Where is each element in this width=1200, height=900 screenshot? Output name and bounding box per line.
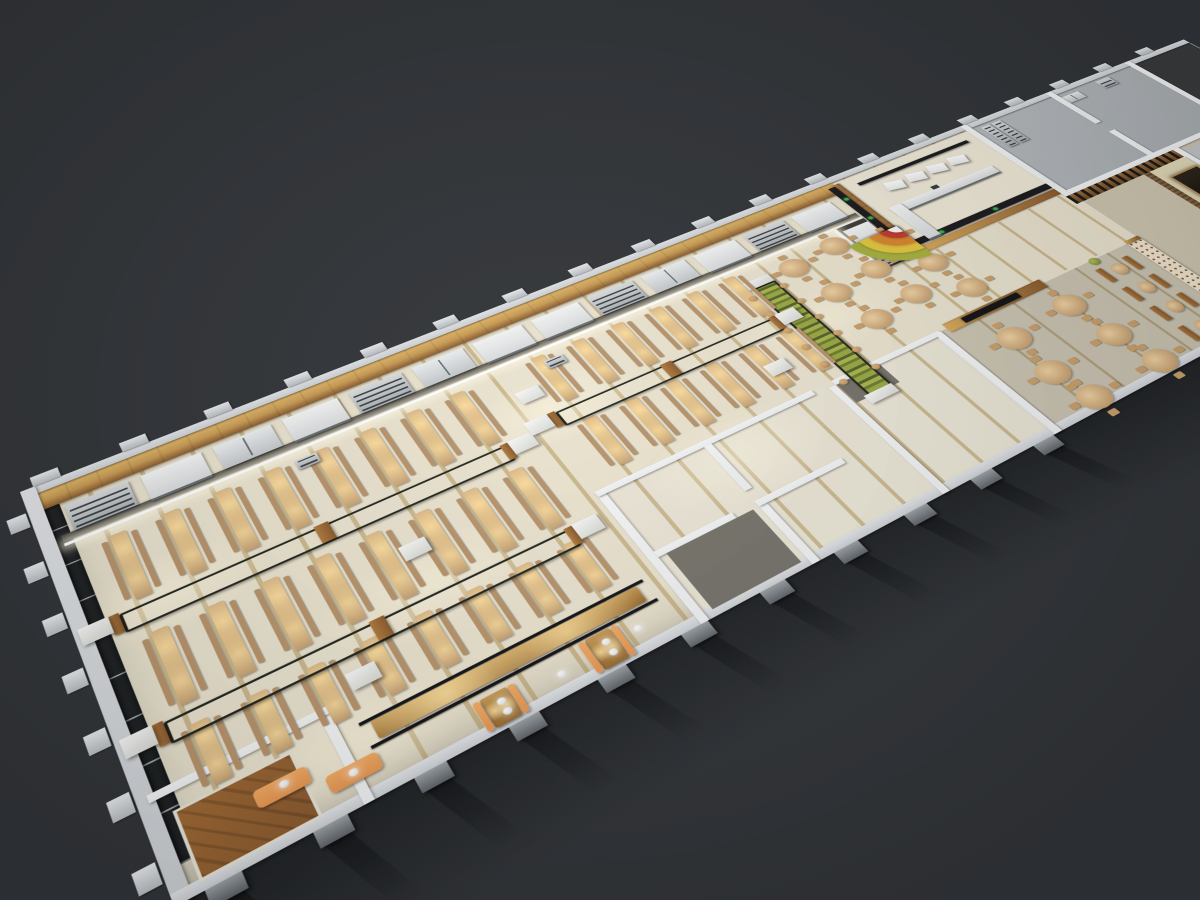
- scene-3d: [0, 0, 1200, 900]
- pilaster: [23, 561, 48, 584]
- pilaster: [42, 612, 68, 637]
- floorplan: [0, 33, 1200, 900]
- render-canvas: [0, 0, 1200, 900]
- pilaster: [6, 513, 30, 535]
- pilaster: [61, 668, 89, 695]
- pilaster: [83, 727, 112, 756]
- pilaster: [131, 862, 163, 896]
- pilaster: [106, 792, 136, 824]
